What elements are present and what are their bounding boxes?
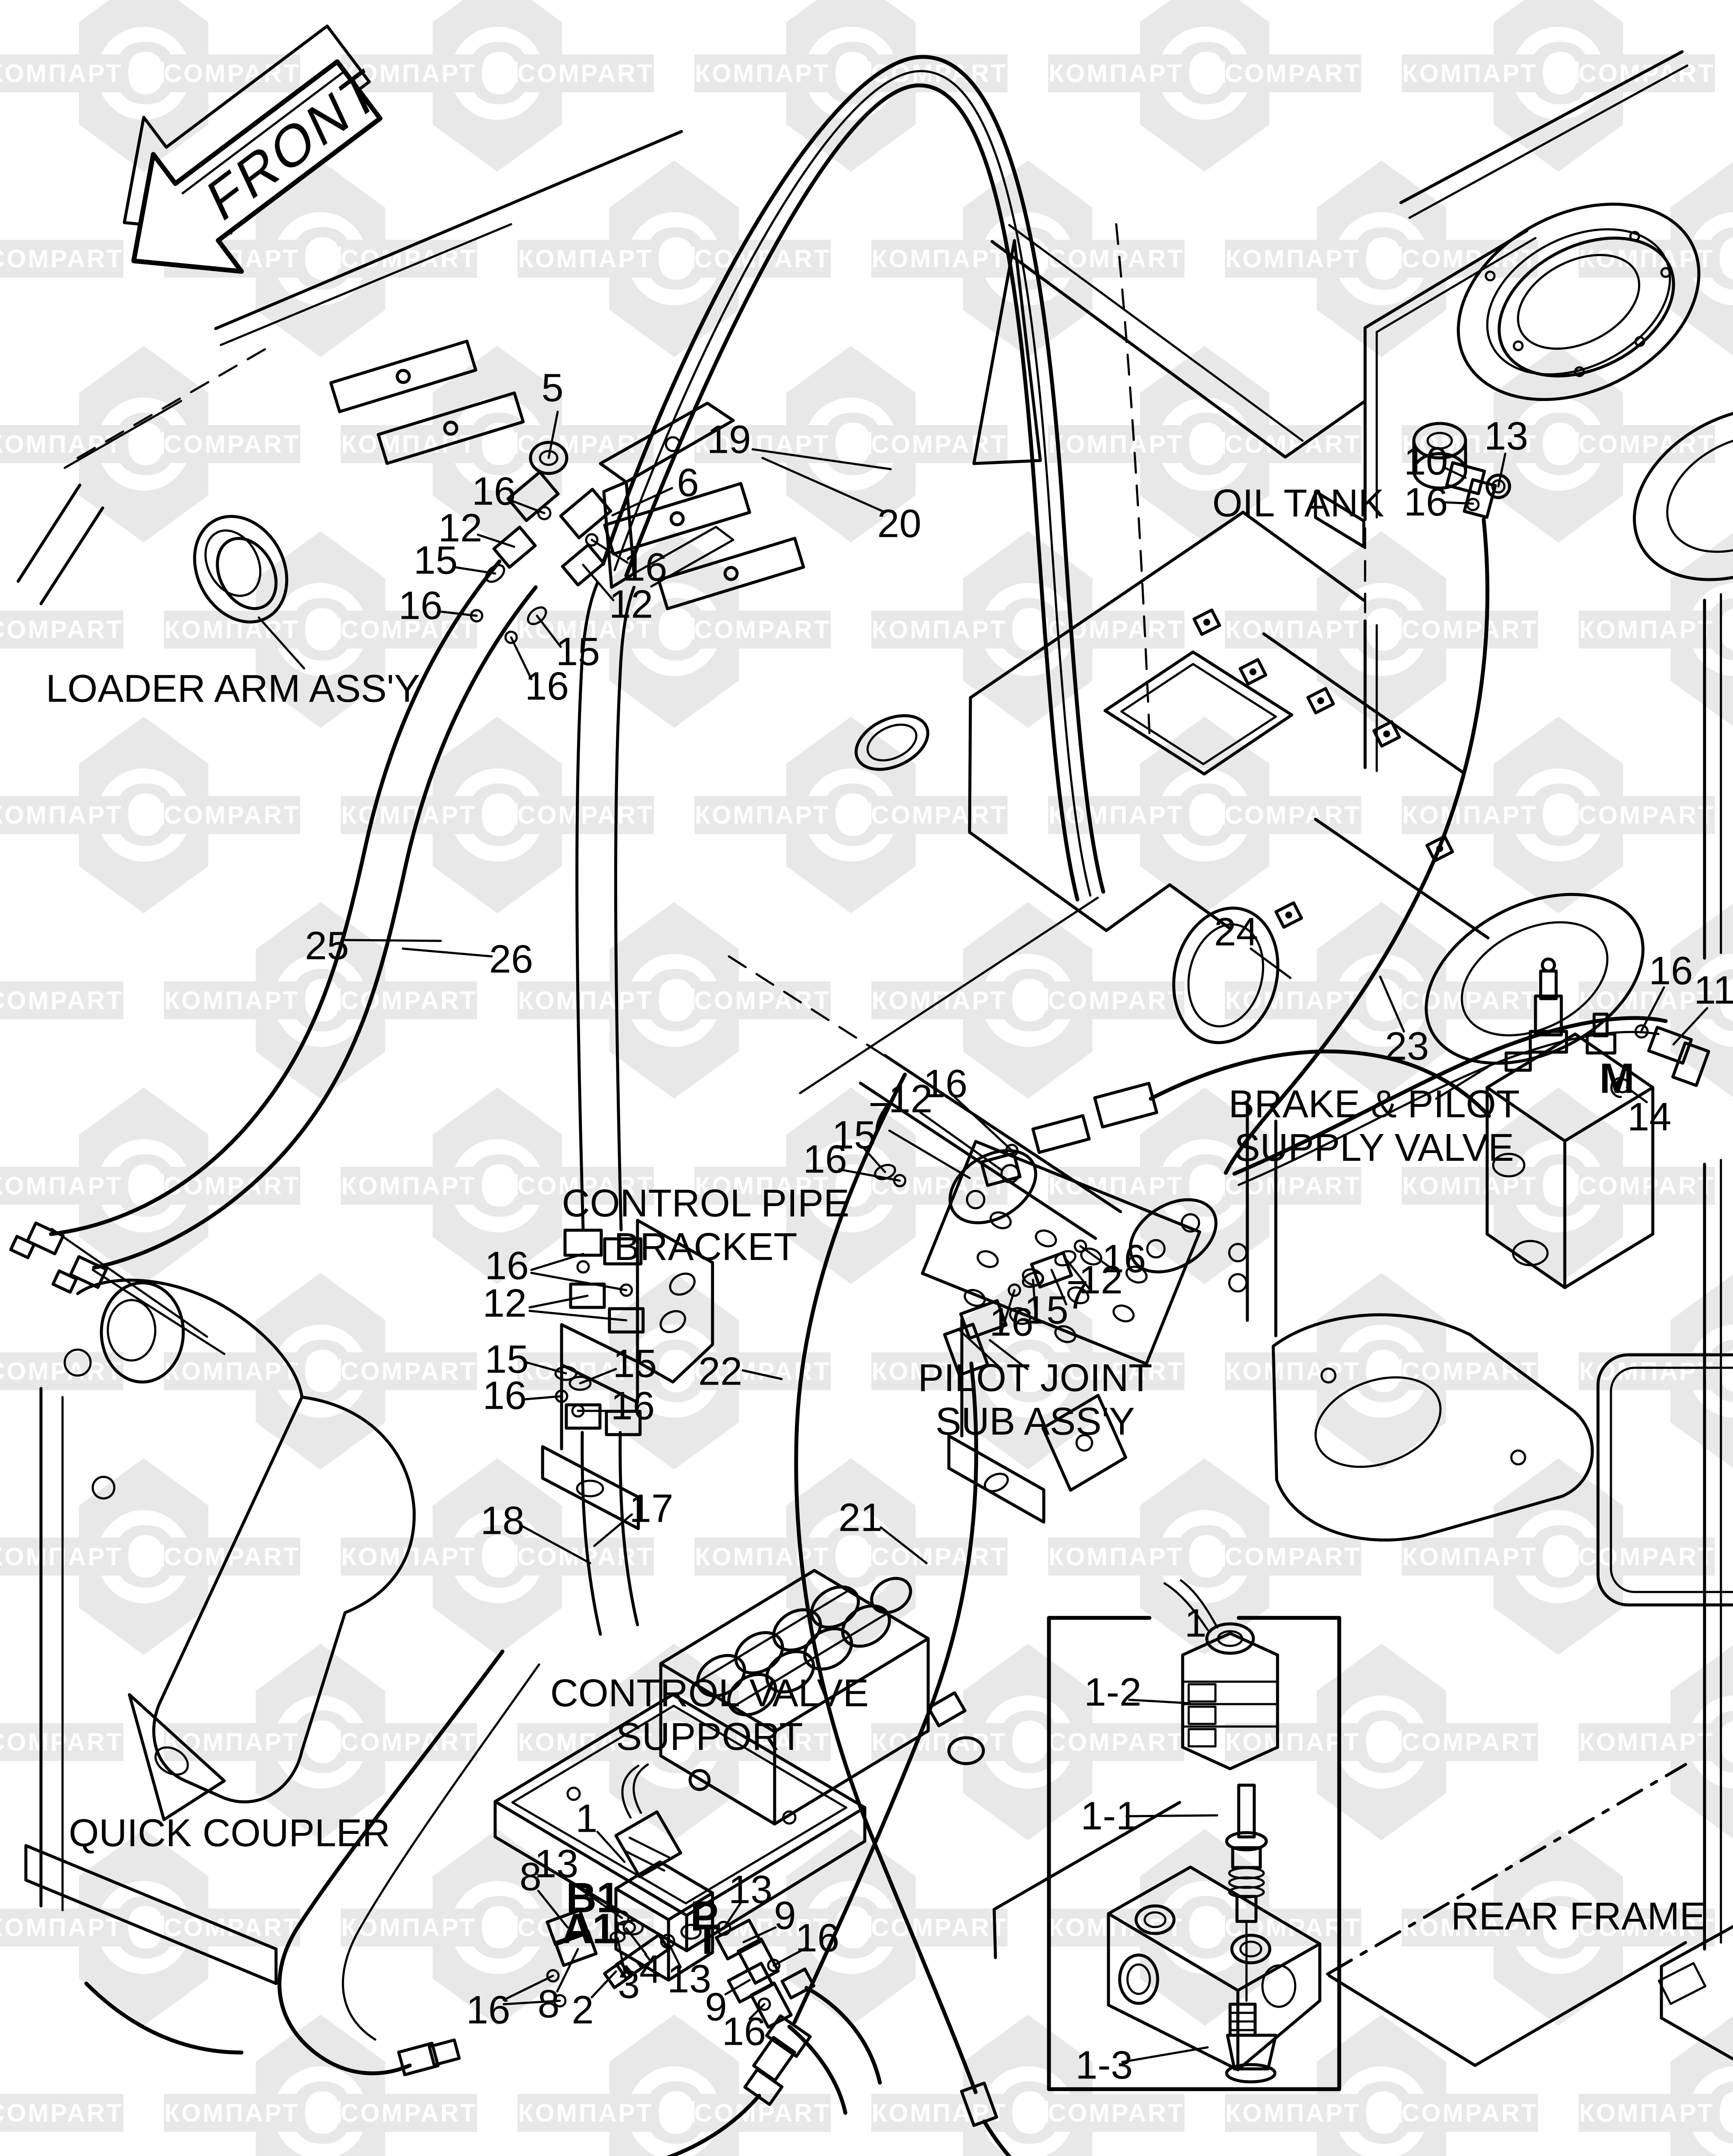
callout-3: 3 xyxy=(618,1962,640,2008)
callout-10: 10 xyxy=(1404,439,1448,484)
label-pilot-joint-sub-assy: PILOT JOINTSUB ASS'Y xyxy=(918,1357,1152,1444)
callout-24: 24 xyxy=(1214,910,1258,955)
callout-6: 6 xyxy=(677,461,699,506)
callout-1: 1 xyxy=(1184,1601,1206,1646)
callout-16: 16 xyxy=(989,1300,1033,1345)
label-control-pipe-bracket: CONTROL PIPEBRACKET xyxy=(562,1182,850,1269)
callout-17: 17 xyxy=(629,1486,673,1532)
callout-12: 12 xyxy=(483,1281,527,1326)
label-rear-frame: REAR FRAME xyxy=(1451,1895,1705,1939)
callout-12: 12 xyxy=(609,582,653,627)
callout-15: 15 xyxy=(613,1341,657,1387)
callout-9: 9 xyxy=(774,1893,796,1939)
callout-16: 16 xyxy=(1404,480,1448,525)
callout-A1: A1 xyxy=(562,1905,615,1953)
callout-16: 16 xyxy=(803,1137,847,1182)
callout-13: 13 xyxy=(728,1868,772,1913)
callout-1-1: 1-1 xyxy=(1081,1794,1138,1839)
callout-22: 22 xyxy=(698,1349,742,1395)
callout-16: 16 xyxy=(722,2009,766,2055)
callout-16: 16 xyxy=(525,664,569,709)
callout-layer: 5196201612151616121516252610131624231611… xyxy=(0,0,1733,2156)
callout-1-2: 1-2 xyxy=(1084,1670,1142,1715)
callout-8: 8 xyxy=(537,1982,559,2027)
callout-7: 7 xyxy=(868,1095,890,1140)
callout-16: 16 xyxy=(923,1062,967,1107)
callout-1-3: 1-3 xyxy=(1076,2043,1133,2088)
label-brake-pilot-supply-valve: BRAKE & PILOTSUPPLY VALVE xyxy=(1228,1083,1520,1170)
callout-15: 15 xyxy=(414,538,458,583)
callout-21: 21 xyxy=(838,1495,882,1541)
callout-20: 20 xyxy=(877,501,921,547)
label-quick-coupler: QUICK COUPLER xyxy=(69,1812,390,1855)
callout-16: 16 xyxy=(1649,949,1693,994)
callout-16: 16 xyxy=(483,1373,527,1419)
callout-16: 16 xyxy=(399,583,443,629)
callout-23: 23 xyxy=(1385,1024,1429,1069)
label-oil-tank: OIL TANK xyxy=(1212,482,1384,526)
parts-diagram-page: { "front_arrow": { "label": "FRONT" }, "… xyxy=(0,0,1733,2156)
callout-11: 11 xyxy=(1694,968,1733,1013)
callout-25: 25 xyxy=(305,924,349,969)
callout-2: 2 xyxy=(571,1988,593,2033)
callout-16: 16 xyxy=(466,1988,510,2033)
callout-18: 18 xyxy=(480,1498,524,1544)
callout-14: 14 xyxy=(1627,1095,1671,1140)
callout-19: 19 xyxy=(707,417,751,463)
callout-16: 16 xyxy=(795,1916,839,1961)
callout-4: 4 xyxy=(639,1947,661,1993)
callout-16: 16 xyxy=(611,1384,655,1429)
callout-5: 5 xyxy=(541,366,563,411)
callout-13: 13 xyxy=(1484,414,1528,459)
callout-7: 7 xyxy=(1066,1273,1088,1318)
callout-1: 1 xyxy=(575,1796,597,1842)
label-loader-arm-assy: LOADER ARM ASS'Y xyxy=(46,667,420,711)
label-control-valve-support: CONTROL VALVESUPPORT xyxy=(550,1672,869,1759)
callout-26: 26 xyxy=(489,937,533,982)
